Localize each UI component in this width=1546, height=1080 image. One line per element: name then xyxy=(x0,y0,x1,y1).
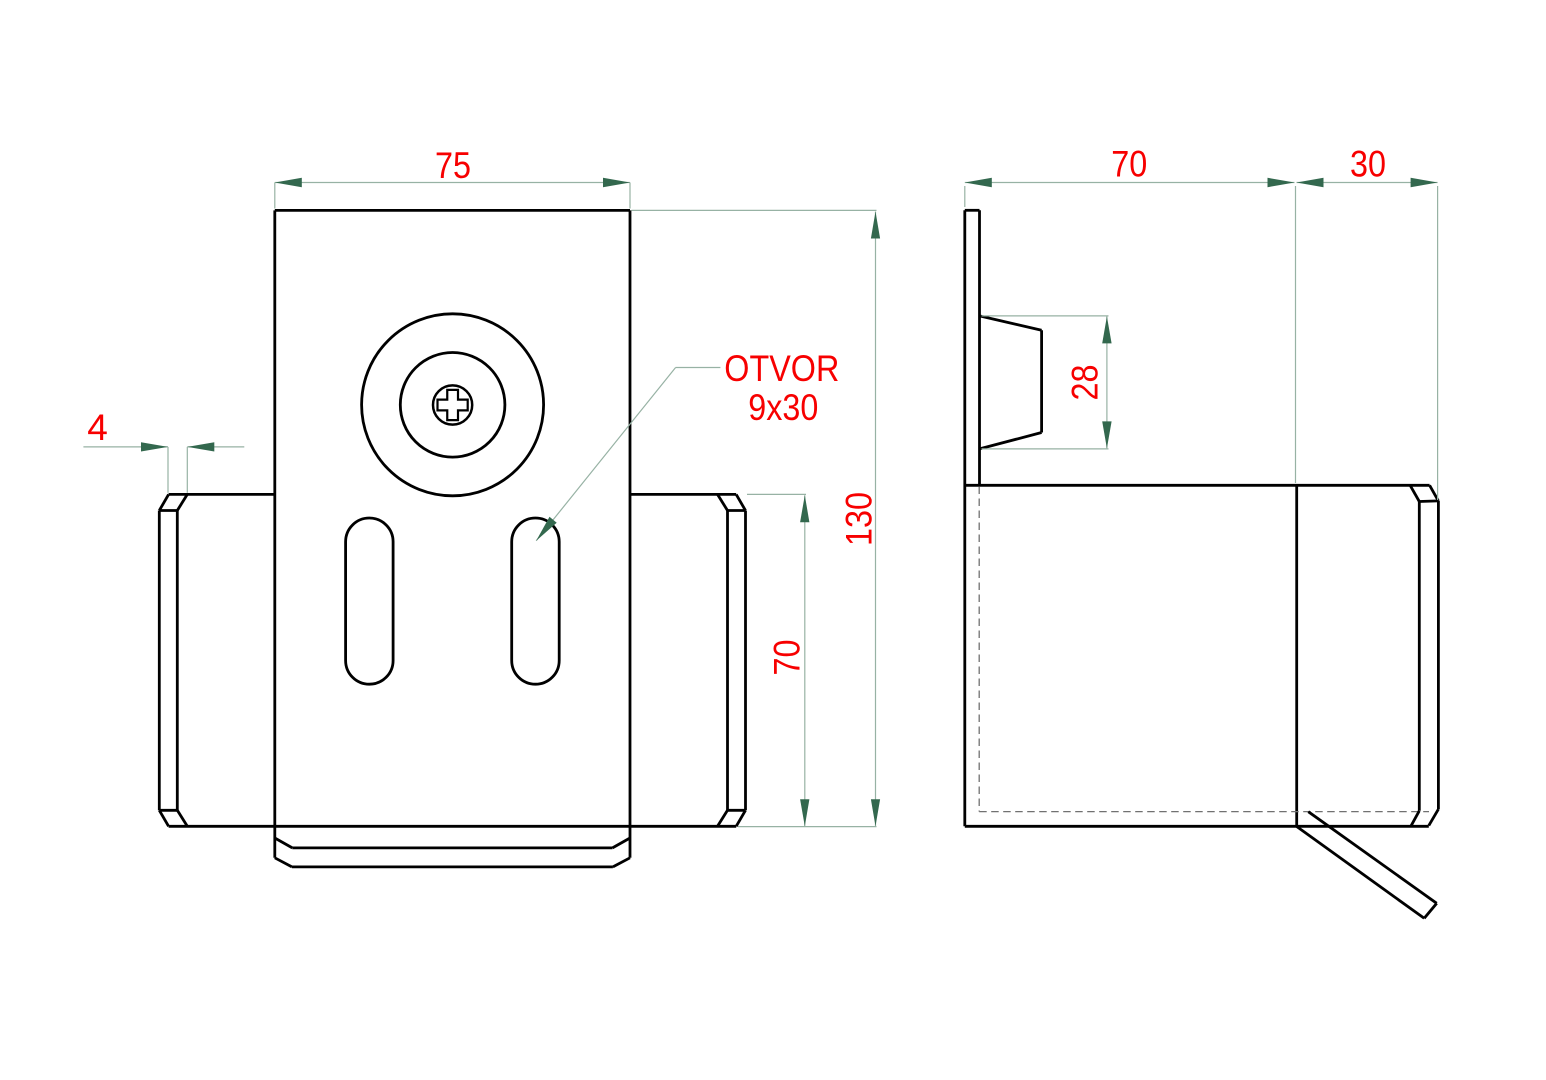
svg-text:9x30: 9x30 xyxy=(748,387,818,428)
svg-text:30: 30 xyxy=(1350,144,1386,185)
svg-text:4: 4 xyxy=(87,407,108,448)
svg-text:28: 28 xyxy=(1065,365,1106,401)
svg-text:70: 70 xyxy=(1111,144,1147,185)
svg-text:OTVOR: OTVOR xyxy=(724,348,839,389)
svg-text:130: 130 xyxy=(839,492,880,546)
svg-text:75: 75 xyxy=(435,145,471,186)
svg-text:70: 70 xyxy=(767,640,808,676)
